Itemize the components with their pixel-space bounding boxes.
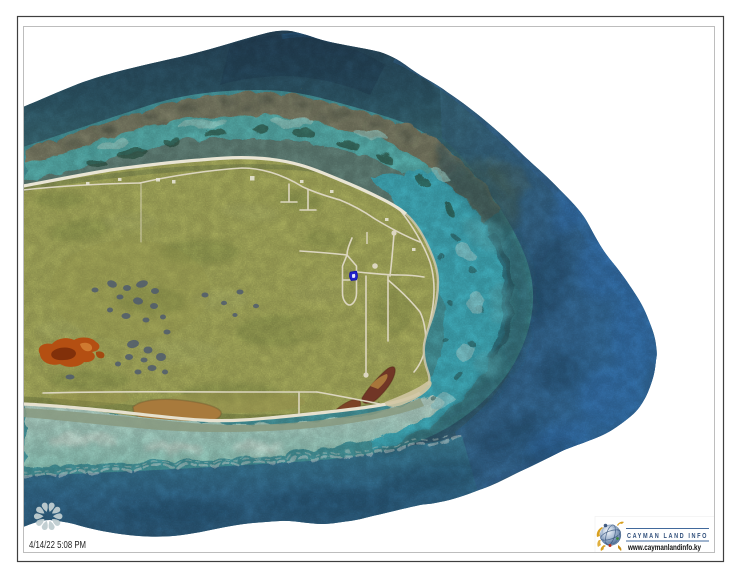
svg-text:CAYMAN LAND INFO: CAYMAN LAND INFO xyxy=(627,533,708,540)
svg-text:4/14/22 5:08 PM: 4/14/22 5:08 PM xyxy=(29,540,86,551)
svg-text:www.caymanlandinfo.ky: www.caymanlandinfo.ky xyxy=(627,543,701,552)
